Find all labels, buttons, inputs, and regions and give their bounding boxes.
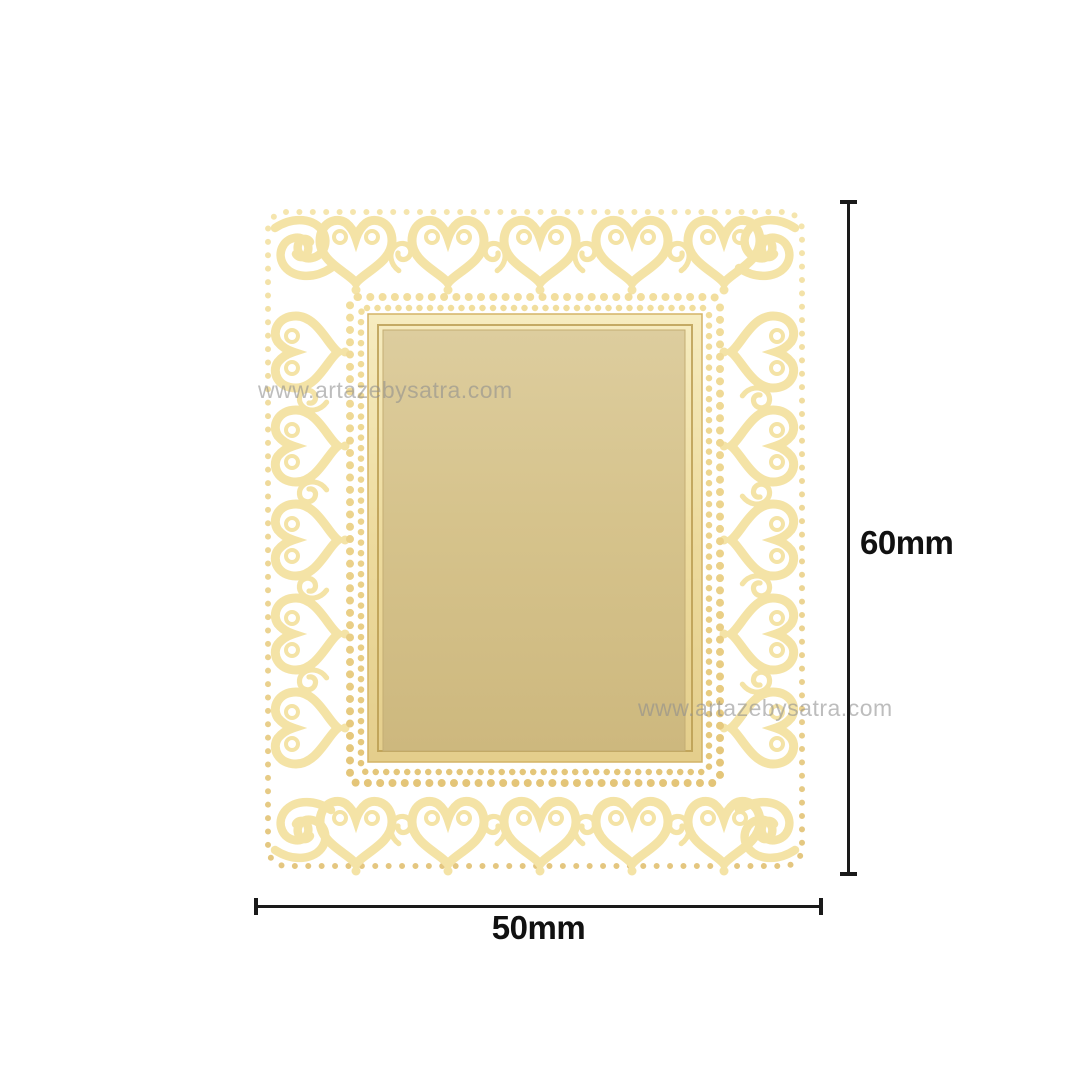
dimension-line-end-cap	[819, 898, 823, 915]
dimension-line-end-cap	[840, 200, 857, 204]
width-dimension-label: 50mm	[448, 909, 629, 947]
dimension-line-end-cap	[254, 898, 258, 915]
watermark-text: www.artazebysatra.com	[258, 377, 513, 404]
watermark-text: www.artazebysatra.com	[638, 695, 893, 722]
product-image: www.artazebysatra.com www.artazebysatra.…	[0, 0, 1080, 1080]
height-dimension-label: 60mm	[860, 524, 953, 562]
height-dimension-line	[847, 201, 850, 875]
dimension-line-end-cap	[840, 872, 857, 876]
width-dimension-line	[255, 905, 822, 908]
